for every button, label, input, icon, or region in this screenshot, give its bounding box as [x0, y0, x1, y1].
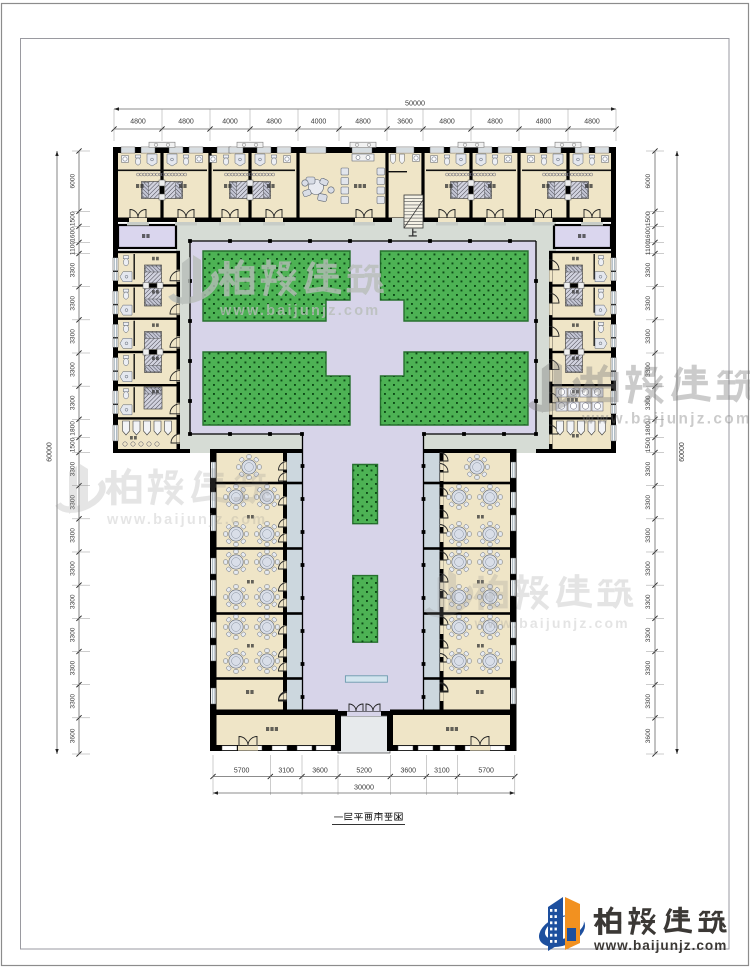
svg-text:3600: 3600: [645, 728, 652, 743]
svg-text:1500: 1500: [645, 437, 652, 452]
svg-text:3300: 3300: [70, 296, 77, 311]
svg-text:6000: 6000: [70, 173, 77, 188]
svg-text:3300: 3300: [70, 694, 77, 709]
svg-text:3600: 3600: [401, 768, 417, 775]
svg-text:3300: 3300: [645, 461, 652, 476]
svg-text:1100: 1100: [645, 241, 652, 256]
svg-text:1500: 1500: [645, 211, 652, 226]
svg-text:30000: 30000: [354, 783, 374, 792]
svg-text:3100: 3100: [278, 768, 294, 775]
svg-text:www.baijunjz.com: www.baijunjz.com: [106, 512, 267, 528]
svg-text:3300: 3300: [70, 329, 77, 344]
svg-text:4800: 4800: [487, 119, 503, 126]
svg-text:4800: 4800: [130, 119, 146, 126]
svg-text:www.baijunjz.com: www.baijunjz.com: [473, 615, 629, 631]
svg-text:4000: 4000: [311, 119, 327, 126]
svg-text:3300: 3300: [645, 329, 652, 344]
svg-text:4000: 4000: [222, 119, 238, 126]
svg-text:4800: 4800: [536, 119, 552, 126]
svg-text:6000: 6000: [645, 173, 652, 188]
svg-text:3300: 3300: [70, 660, 77, 675]
svg-text:3300: 3300: [70, 395, 77, 410]
svg-text:3300: 3300: [645, 594, 652, 609]
svg-text:3600: 3600: [397, 119, 413, 126]
svg-text:3600: 3600: [70, 728, 77, 743]
svg-text:4800: 4800: [439, 119, 455, 126]
svg-text:5700: 5700: [234, 768, 250, 775]
svg-text:3300: 3300: [645, 561, 652, 576]
svg-text:5200: 5200: [356, 768, 372, 775]
svg-text:3300: 3300: [645, 296, 652, 311]
svg-text:1500: 1500: [70, 211, 77, 226]
svg-text:4800: 4800: [584, 119, 600, 126]
svg-text:3300: 3300: [70, 561, 77, 576]
svg-text:1500: 1500: [70, 437, 77, 452]
svg-text:5700: 5700: [478, 768, 494, 775]
svg-text:4800: 4800: [178, 119, 194, 126]
svg-text:www.baijunjz.com: www.baijunjz.com: [219, 303, 380, 319]
svg-text:3300: 3300: [70, 362, 77, 377]
svg-text:1600: 1600: [70, 227, 77, 242]
svg-text:4800: 4800: [355, 119, 371, 126]
svg-text:3300: 3300: [70, 262, 77, 277]
svg-text:3600: 3600: [312, 768, 328, 775]
svg-text:3100: 3100: [434, 768, 450, 775]
svg-text:3300: 3300: [645, 528, 652, 543]
svg-text:3300: 3300: [70, 528, 77, 543]
svg-text:1800: 1800: [70, 421, 77, 436]
svg-text:3300: 3300: [645, 660, 652, 675]
svg-text:3300: 3300: [645, 262, 652, 277]
svg-text:www.baijunjz.com: www.baijunjz.com: [581, 411, 750, 428]
svg-text:www.baijunjz.com: www.baijunjz.com: [593, 938, 727, 953]
svg-text:1600: 1600: [645, 227, 652, 242]
svg-text:3300: 3300: [645, 627, 652, 642]
svg-text:50000: 50000: [405, 99, 425, 108]
svg-text:4800: 4800: [266, 119, 282, 126]
svg-text:3300: 3300: [70, 594, 77, 609]
svg-text:3300: 3300: [645, 694, 652, 709]
svg-text:3300: 3300: [70, 627, 77, 642]
svg-text:60000: 60000: [47, 442, 54, 462]
svg-text:3300: 3300: [645, 495, 652, 510]
svg-text:1100: 1100: [70, 241, 77, 256]
svg-text:60000: 60000: [679, 442, 686, 462]
